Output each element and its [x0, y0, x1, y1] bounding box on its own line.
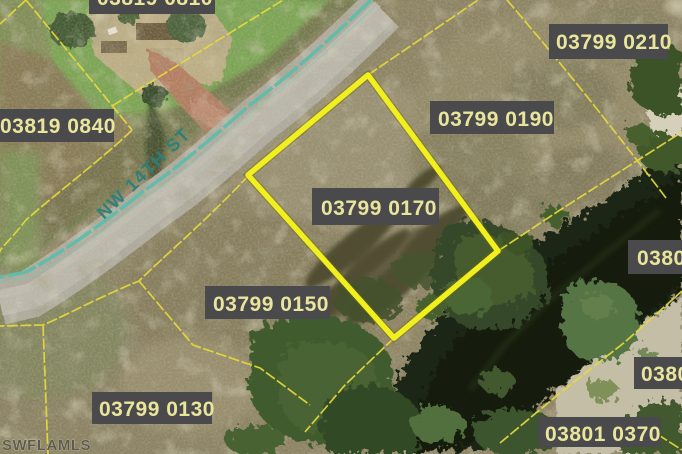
svg-text:SWFLAMLS: SWFLAMLS [2, 437, 91, 454]
svg-text:03799 0130: 03799 0130 [99, 398, 215, 421]
svg-text:03819 0840: 03819 0840 [0, 115, 116, 138]
svg-text:03799 0210: 03799 0210 [556, 31, 672, 54]
svg-text:03801 0370: 03801 0370 [545, 423, 661, 446]
svg-text:0380: 0380 [637, 247, 682, 270]
svg-text:0380: 0380 [641, 363, 682, 386]
svg-text:03819 0810: 03819 0810 [97, 0, 213, 10]
svg-text:03799 0150: 03799 0150 [213, 293, 329, 316]
svg-text:03799 0170: 03799 0170 [321, 197, 437, 220]
svg-text:03799 0190: 03799 0190 [438, 108, 554, 131]
